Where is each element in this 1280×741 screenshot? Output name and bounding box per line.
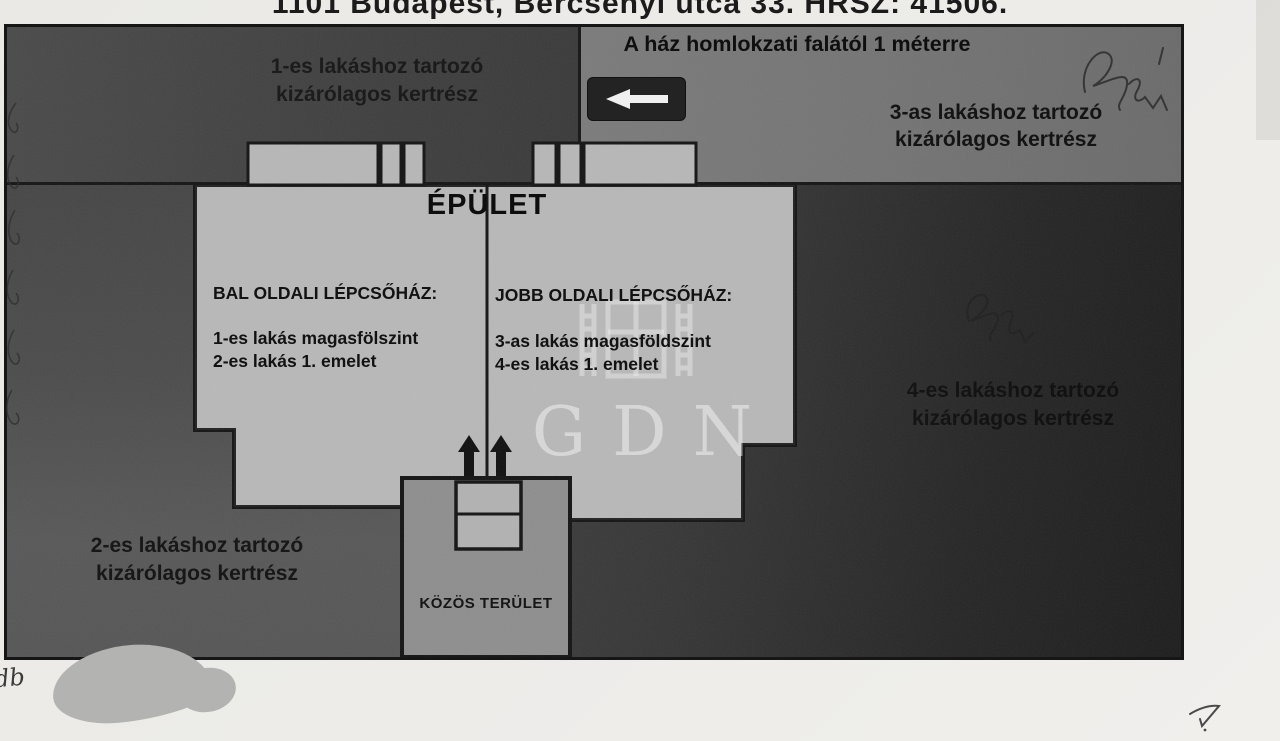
garden2-label-line1: 2-es lakáshoz tartozó [7,532,387,560]
building-title: ÉPÜLET [387,191,587,219]
left-arrow-icon [601,87,673,111]
handwritten-note: db [0,662,26,693]
garden1-label: 1-es lakáshoz tartozó kizárólagos kertré… [187,53,567,109]
garden3-label-line1: 3-as lakáshoz tartozó [796,99,1196,126]
garden2-label: 2-es lakáshoz tartozó kizárólagos kertré… [7,532,387,588]
plan-diagram: GDN 1-es lakáshoz tartozó kizárólagos ke… [4,24,1184,660]
garden1-label-line2: kizárólagos kertrész [187,81,567,109]
stairwell-right-heading: JOBB OLDALI LÉPCSŐHÁZ: [495,285,732,306]
garden3-label: 3-as lakáshoz tartozó kizárólagos kertré… [796,99,1196,153]
garden4-label-line1: 4-es lakáshoz tartozó [813,377,1213,405]
stairwell-left-heading: BAL OLDALI LÉPCSŐHÁZ: [213,283,437,304]
garden4-label-line2: kizárólagos kertrész [813,405,1213,433]
stairwell-left-line1: 1-es lakás magasfölszint [213,328,418,349]
paper-edge-strip [1256,0,1280,140]
garden3-label-line2: kizárólagos kertrész [796,126,1196,153]
garden4-label: 4-es lakáshoz tartozó kizárólagos kertré… [813,377,1213,433]
page-title: 1101 Budapest, Bercsényi utca 33. HRSZ: … [0,0,1280,21]
stairwell-right-line2: 4-es lakás 1. emelet [495,354,658,375]
garden1-label-line1: 1-es lakáshoz tartozó [187,53,567,81]
facade-note: A ház homlokzati falától 1 méterre [592,31,1002,57]
facade-arrow-box [588,78,685,120]
stairwell-left-line2: 2-es lakás 1. emelet [213,351,376,372]
stairwell-right-line1: 3-as lakás magasföldszint [495,331,711,352]
common-area-label: KÖZÖS TERÜLET [402,590,570,618]
garden2-label-line2: kizárólagos kertrész [7,560,387,588]
pen-mark [1186,698,1230,734]
